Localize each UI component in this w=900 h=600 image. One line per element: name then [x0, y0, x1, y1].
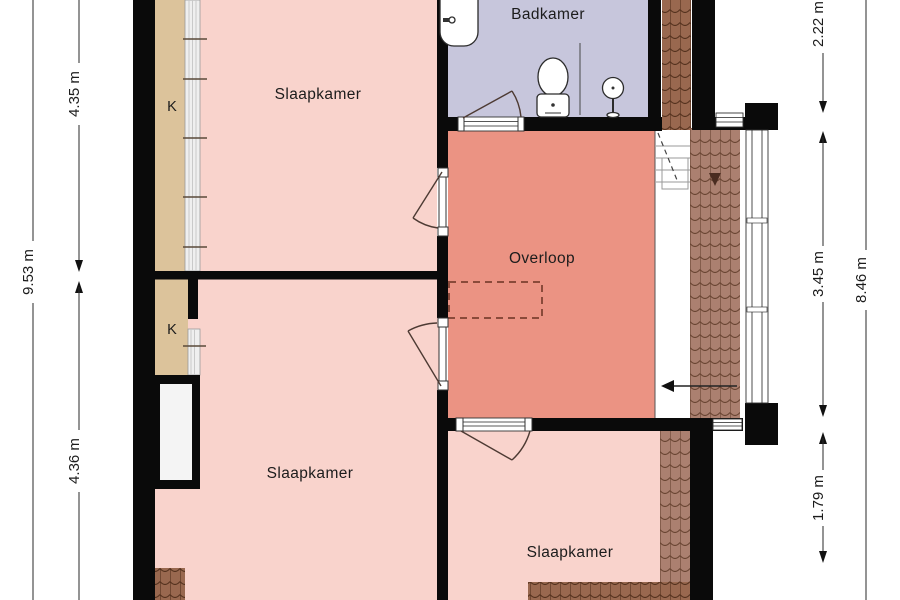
dim-label-1-79: 1.79 m	[810, 475, 827, 521]
room-overloop	[448, 130, 655, 418]
closet-area	[153, 0, 185, 271]
label-slaapkamer-bottom-right: Slaapkamer	[527, 544, 614, 561]
outer-wall-bottom-right	[690, 431, 713, 600]
roof-strip-stairwell	[690, 128, 740, 418]
window-top-right-small	[716, 113, 743, 127]
dim-label-8-46: 8.46 m	[853, 257, 870, 303]
closet-top-left	[153, 0, 207, 271]
outer-wall-left	[133, 0, 155, 600]
dimension-right-total: 8.46 m	[853, 0, 870, 600]
bath-faucet-handle	[443, 18, 449, 22]
roof-strip-top-right	[662, 0, 691, 130]
landing-south-wall-left	[437, 418, 456, 431]
label-closet-top: K	[167, 99, 177, 115]
window-bottom-right-small	[713, 419, 742, 430]
dimension-left-lower: 4.36 m	[66, 281, 83, 600]
bathtub-icon	[440, 0, 478, 46]
floorplan-svg: Slaapkamer Badkamer Overloop Slaapkamer …	[0, 0, 900, 600]
label-slaapkamer-bottom-left: Slaapkamer	[267, 465, 354, 482]
dim-label-2-22: 2.22 m	[810, 1, 827, 47]
roof-strip-bottom-left	[155, 568, 185, 600]
dimension-left-total: 9.53 m	[20, 0, 37, 600]
label-badkamer: Badkamer	[511, 6, 585, 23]
label-slaapkamer-top-left: Slaapkamer	[275, 86, 362, 103]
stairwell-floor	[655, 130, 692, 418]
dim-label-9-53: 9.53 m	[20, 249, 37, 295]
outer-wall-top-right	[692, 0, 715, 130]
bathroom-right-wall	[648, 0, 661, 117]
window-right-tall	[746, 130, 768, 403]
corner-block-mid-right	[745, 403, 778, 445]
chimney-void-inner	[160, 384, 192, 480]
dimension-right-top: 2.22 m	[810, 1, 827, 113]
wall-between-left-bedrooms	[154, 271, 440, 280]
roof-strip-bottom-right-vertical	[660, 431, 690, 582]
dimension-left-upper: 4.35 m	[66, 0, 83, 272]
corner-block-top-right	[745, 103, 778, 130]
dimension-right-middle: 3.45 m	[810, 131, 827, 417]
bathroom-south-wall-right	[521, 117, 662, 131]
bath-faucet-icon	[449, 17, 455, 23]
label-overloop: Overloop	[509, 250, 575, 267]
dimension-right-bottom: 1.79 m	[810, 432, 827, 563]
dim-label-4-36: 4.36 m	[66, 438, 83, 484]
landing-south-wall-right	[532, 418, 743, 431]
toilet-icon	[537, 58, 569, 117]
dim-label-3-45: 3.45 m	[810, 251, 827, 297]
roof-strip-bottom-band	[528, 582, 690, 600]
label-closet-mid: K	[167, 322, 177, 338]
room-slaapkamer-bottom-right	[448, 431, 690, 600]
closet-stub-wall	[188, 279, 198, 319]
dim-label-4-35: 4.35 m	[66, 71, 83, 117]
